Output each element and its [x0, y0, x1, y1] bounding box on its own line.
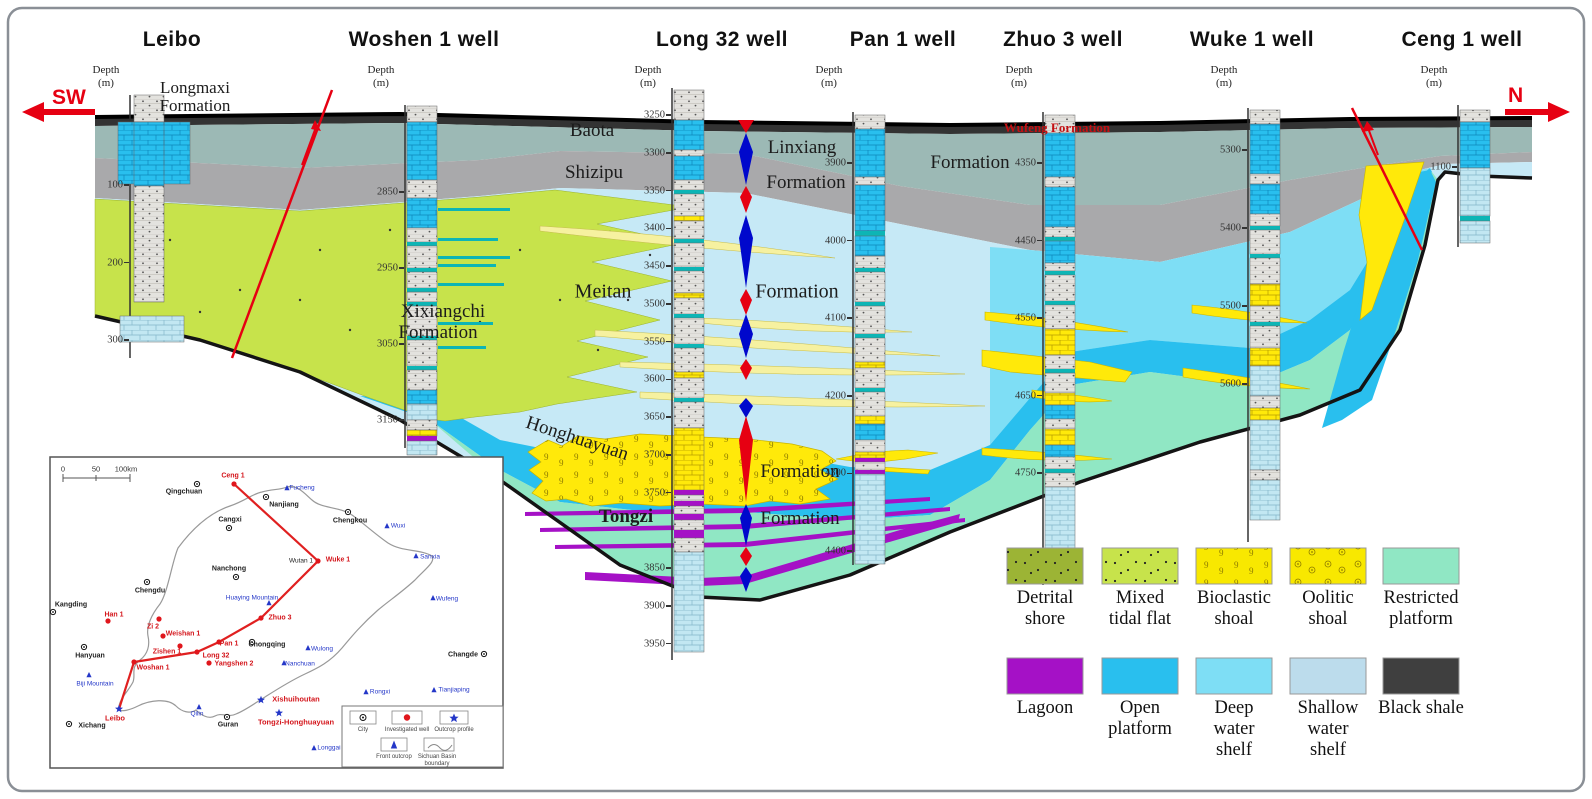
lithology-segment: [1250, 284, 1280, 306]
lithology-segment: [674, 348, 704, 372]
lithology-segment: [407, 292, 437, 302]
lithology-segment: [855, 462, 885, 470]
lithology-segment: [1045, 115, 1075, 133]
lithology-segment: [855, 458, 885, 462]
investigated-well-icon: [105, 618, 110, 623]
lithology-segment: [674, 378, 704, 398]
lithology-segment: [1045, 305, 1075, 329]
lithology-segment: [674, 520, 704, 530]
lithology-segment: [407, 122, 437, 180]
lithology-segment: [1045, 405, 1075, 419]
lithology-segment: [1250, 322, 1280, 326]
lithology-segment: [407, 246, 437, 268]
lithology-segment: [855, 115, 885, 129]
lithology-segment: [855, 470, 885, 474]
lithology-segment: [407, 404, 437, 420]
lithology-segment: [407, 340, 437, 366]
lithology-segment: [407, 390, 437, 404]
investigated-well-icon: [156, 616, 161, 621]
lithology-segment: [407, 106, 437, 122]
lithology-segment: [1045, 393, 1075, 405]
lithology-segment: [1045, 419, 1075, 429]
bioclastic-shoal-swatch-texture: [1196, 548, 1272, 584]
lithology-segment: [1045, 445, 1075, 457]
lithology-segment: [855, 306, 885, 334]
lithology-segment: [407, 288, 437, 292]
lithology-segment: [1045, 469, 1075, 473]
lithology-segment: [1250, 214, 1280, 226]
lithology-segment: [1045, 329, 1075, 355]
lithology-segment: [134, 95, 164, 122]
lithology-segment: [407, 242, 437, 246]
lithology-segment: [1045, 227, 1075, 237]
lithology-segment: [1250, 226, 1280, 230]
lithology-segment: [407, 370, 437, 390]
lithology-segment: [855, 129, 885, 177]
lithology-segment: [674, 216, 704, 221]
lithology-segment: [1045, 237, 1075, 241]
lithology-segment: [1460, 221, 1490, 243]
lithology-segment: [674, 495, 704, 501]
lithology-segment: [674, 194, 704, 216]
lithology-segment: [674, 271, 704, 293]
lithology-segment: [674, 221, 704, 239]
lithology-segment: [855, 334, 885, 338]
lithology-segment: [674, 530, 704, 538]
lagoon-swatch: [1007, 658, 1083, 694]
investigated-well-icon: [258, 615, 263, 620]
cross-section-art: 9 9: [0, 0, 1592, 799]
lithology-segment: [407, 268, 437, 272]
lithology-segment: [1250, 470, 1280, 480]
lithology-segment: [134, 186, 164, 302]
lithology-segment: [855, 177, 885, 185]
lithology-segment: [855, 256, 885, 268]
lithology-segment: [674, 156, 704, 180]
lithology-segment: [1045, 473, 1075, 487]
lithology-segment: [674, 398, 704, 402]
lithology-segment: [674, 501, 704, 506]
lithology-segment: [1250, 366, 1280, 396]
lithology-segment: [407, 336, 437, 340]
lithology-segment: [407, 441, 437, 455]
lithology-segment: [407, 306, 437, 336]
lithology-segment: [1250, 420, 1280, 470]
lithology-segment: [674, 150, 704, 156]
lithology-segment: [1460, 168, 1490, 216]
lithology-segment: [674, 180, 704, 190]
lithology-segment: [1250, 480, 1280, 520]
stratigraphic-cross-section-figure: 9 9: [0, 0, 1592, 799]
investigated-well-icon: [404, 714, 410, 720]
lithology-segment: [407, 430, 437, 436]
lithology-segment: [1045, 177, 1075, 187]
investigated-well-icon: [194, 649, 199, 654]
lithology-segment: [1250, 254, 1280, 258]
lithology-segment: [1045, 369, 1075, 373]
lithology-segment: [1250, 326, 1280, 348]
lithology-segment: [1045, 133, 1075, 177]
oolitic-shoal-swatch-texture: [1290, 548, 1366, 584]
lithology-segment: [1045, 301, 1075, 305]
lithology-segment: [1250, 174, 1280, 184]
lithology-segment: [674, 372, 704, 378]
investigated-well-icon: [216, 639, 221, 644]
inset-map: [50, 457, 503, 768]
lithology-segment: [855, 231, 885, 236]
deep-water-shelf-swatch: [1196, 658, 1272, 694]
lithology-segment: [1045, 187, 1075, 227]
investigated-well-icon: [160, 633, 165, 638]
lithology-segment: [674, 318, 704, 344]
lithology-segment: [1045, 429, 1075, 445]
lithology-segment: [855, 368, 885, 388]
lithology-segment: [407, 302, 437, 306]
lithology-segment: [674, 243, 704, 267]
lithology-segment: [1045, 263, 1075, 271]
lithology-segment: [855, 416, 885, 424]
map-legend-box: [342, 706, 503, 767]
lithology-segment: [1250, 124, 1280, 174]
restricted-platform-swatch: [1383, 548, 1459, 584]
lithology-segment: [855, 302, 885, 306]
lithology-segment: [674, 90, 704, 120]
lithology-segment: [407, 180, 437, 198]
lithology-segment: [674, 190, 704, 194]
black-shale-swatch: [1383, 658, 1459, 694]
lithology-segment: [855, 268, 885, 272]
lithology-segment: [1460, 110, 1490, 122]
lithology-segment: [1045, 373, 1075, 393]
lithology-segment: [407, 420, 437, 430]
lithology-segment: [1250, 258, 1280, 284]
lithology-segment: [674, 314, 704, 318]
lithology-segment: [407, 198, 437, 228]
lithology-segment: [1045, 241, 1075, 263]
lithology-segment: [1250, 408, 1280, 420]
lithology-segment: [407, 366, 437, 370]
lithology-segment: [674, 538, 704, 552]
investigated-well-icon: [206, 660, 211, 665]
lithology-segment: [855, 272, 885, 302]
lithology-segment: [1250, 348, 1280, 366]
lithology-segment: [674, 293, 704, 298]
detrital-shore-swatch-texture: [1007, 548, 1083, 584]
lithology-segment: [674, 552, 704, 652]
investigated-well-icon: [315, 558, 320, 563]
lithology-segment: [855, 440, 885, 452]
lithology-segment: [855, 236, 885, 256]
lithology-segment: [1045, 275, 1075, 301]
lithology-segment: [855, 392, 885, 416]
lithology-segment: [855, 452, 885, 458]
lithology-segment: [1045, 457, 1075, 469]
lithology-segment: [1250, 184, 1280, 214]
mixed-tidal-flat-swatch-texture: [1102, 548, 1178, 584]
lithology-segment: [407, 228, 437, 242]
lithology-segment: [855, 362, 885, 368]
lithology-segment: [674, 514, 704, 520]
lithology-segment: [674, 239, 704, 243]
lithology-segment: [855, 185, 885, 231]
lithology-segment: [134, 122, 164, 186]
lithology-segment: [120, 316, 184, 342]
lithology-segment: [855, 424, 885, 440]
lithology-segment: [855, 388, 885, 392]
shallow-water-shelf-swatch: [1290, 658, 1366, 694]
investigated-well-icon: [177, 643, 182, 648]
lithology-segment: [674, 344, 704, 348]
lithology-segment: [855, 474, 885, 564]
lithology-segment: [674, 506, 704, 514]
lithology-segment: [1250, 306, 1280, 322]
lithology-segment: [407, 436, 437, 441]
lithology-segment: [1460, 216, 1490, 221]
lithology-segment: [674, 120, 704, 150]
lithology-segment: [674, 267, 704, 271]
lithology-segment: [407, 272, 437, 288]
investigated-well-icon: [231, 481, 236, 486]
lithology-segment: [1045, 271, 1075, 275]
open-platform-swatch: [1102, 658, 1178, 694]
lithology-segment: [1250, 396, 1280, 408]
lithology-segment: [674, 298, 704, 314]
lithology-segment: [1045, 355, 1075, 369]
lithology-segment: [1250, 230, 1280, 254]
lithology-segment: [855, 338, 885, 362]
lithology-segment: [1250, 110, 1280, 124]
investigated-well-icon: [131, 659, 136, 664]
lithology-segment: [674, 428, 704, 490]
lithology-segment: [674, 490, 704, 495]
lithology-segment: [674, 402, 704, 428]
lithology-segment: [1460, 122, 1490, 168]
